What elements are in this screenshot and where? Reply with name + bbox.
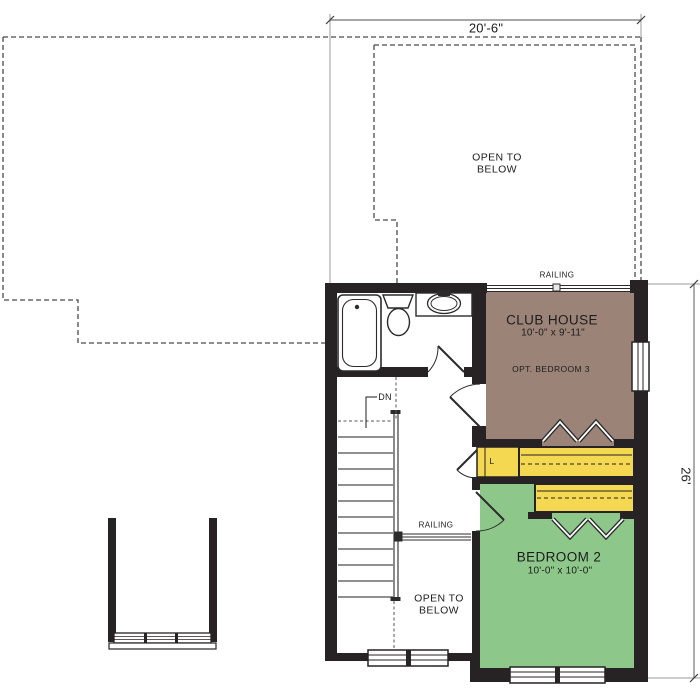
bedroom-2-title: BEDROOM 2 (517, 549, 602, 564)
club-house-title: CLUB HOUSE (506, 312, 598, 327)
dn-leader-line (366, 397, 377, 428)
wall-closet-mid (472, 477, 648, 484)
wall-bath-north (325, 283, 487, 293)
stairs-dn-label: DN (378, 392, 391, 402)
linen-closet-door (457, 450, 477, 478)
stair-railing-cap (391, 597, 401, 601)
dimension-width-label: 20'-6" (469, 22, 503, 37)
wall-closet-north-a (472, 439, 542, 447)
open-to-below-upper-label: OPEN TO BELOW (472, 152, 522, 176)
railing-lower-label: RAILING (419, 522, 454, 531)
wall-right-upper (634, 280, 648, 343)
staircase (338, 377, 401, 652)
faucet-icon (438, 290, 450, 296)
wall-bedroom-west (472, 531, 480, 661)
club-house-size: 10'-0" x 9'-11" (521, 327, 585, 338)
wall-hall-south-b (448, 653, 480, 661)
club-house-door (450, 384, 480, 427)
bedroom-closet-shelf (535, 484, 634, 512)
sink-vanity-icon (416, 290, 472, 316)
wall-structure-below-right (209, 518, 217, 642)
club-house-note: OPT. BEDROOM 3 (512, 365, 590, 375)
linen-closet-floor (477, 447, 519, 477)
bathtub-icon (338, 295, 381, 371)
outline-left (3, 37, 325, 343)
wall-hall-south-a (325, 653, 368, 661)
wall-bedroom-west-stub (472, 484, 480, 490)
railing-post (553, 284, 560, 291)
floor-plan: 20'-6" 26' OPEN TO BELOW RAILING CLUB HO… (0, 0, 700, 700)
hall-window (368, 650, 448, 666)
wall-left (325, 283, 337, 661)
open-to-below-lower-label: OPEN TO BELOW (414, 593, 464, 617)
wall-right-main (634, 390, 648, 682)
bathroom-door (428, 346, 464, 372)
floor-plan-drawing (0, 0, 700, 700)
structure-below-window (109, 633, 216, 649)
open-below-boundary-left (374, 45, 397, 283)
club-house-window (632, 342, 649, 391)
club-closet-shelf (519, 447, 634, 477)
linen-closet-label: L (489, 457, 494, 467)
bedroom-2-size: 10'-0" x 10'-0" (528, 565, 593, 576)
wall-closet-south-a (528, 512, 552, 519)
wall-bedroom-south-a (470, 668, 510, 682)
wall-structure-below-left (108, 518, 116, 642)
bedroom-2-window (510, 667, 605, 683)
dimension-height-label: 26' (678, 467, 693, 485)
railing-upper-label: RAILING (540, 272, 575, 281)
wall-bath-south-b (464, 367, 486, 377)
toilet-icon (383, 295, 413, 336)
